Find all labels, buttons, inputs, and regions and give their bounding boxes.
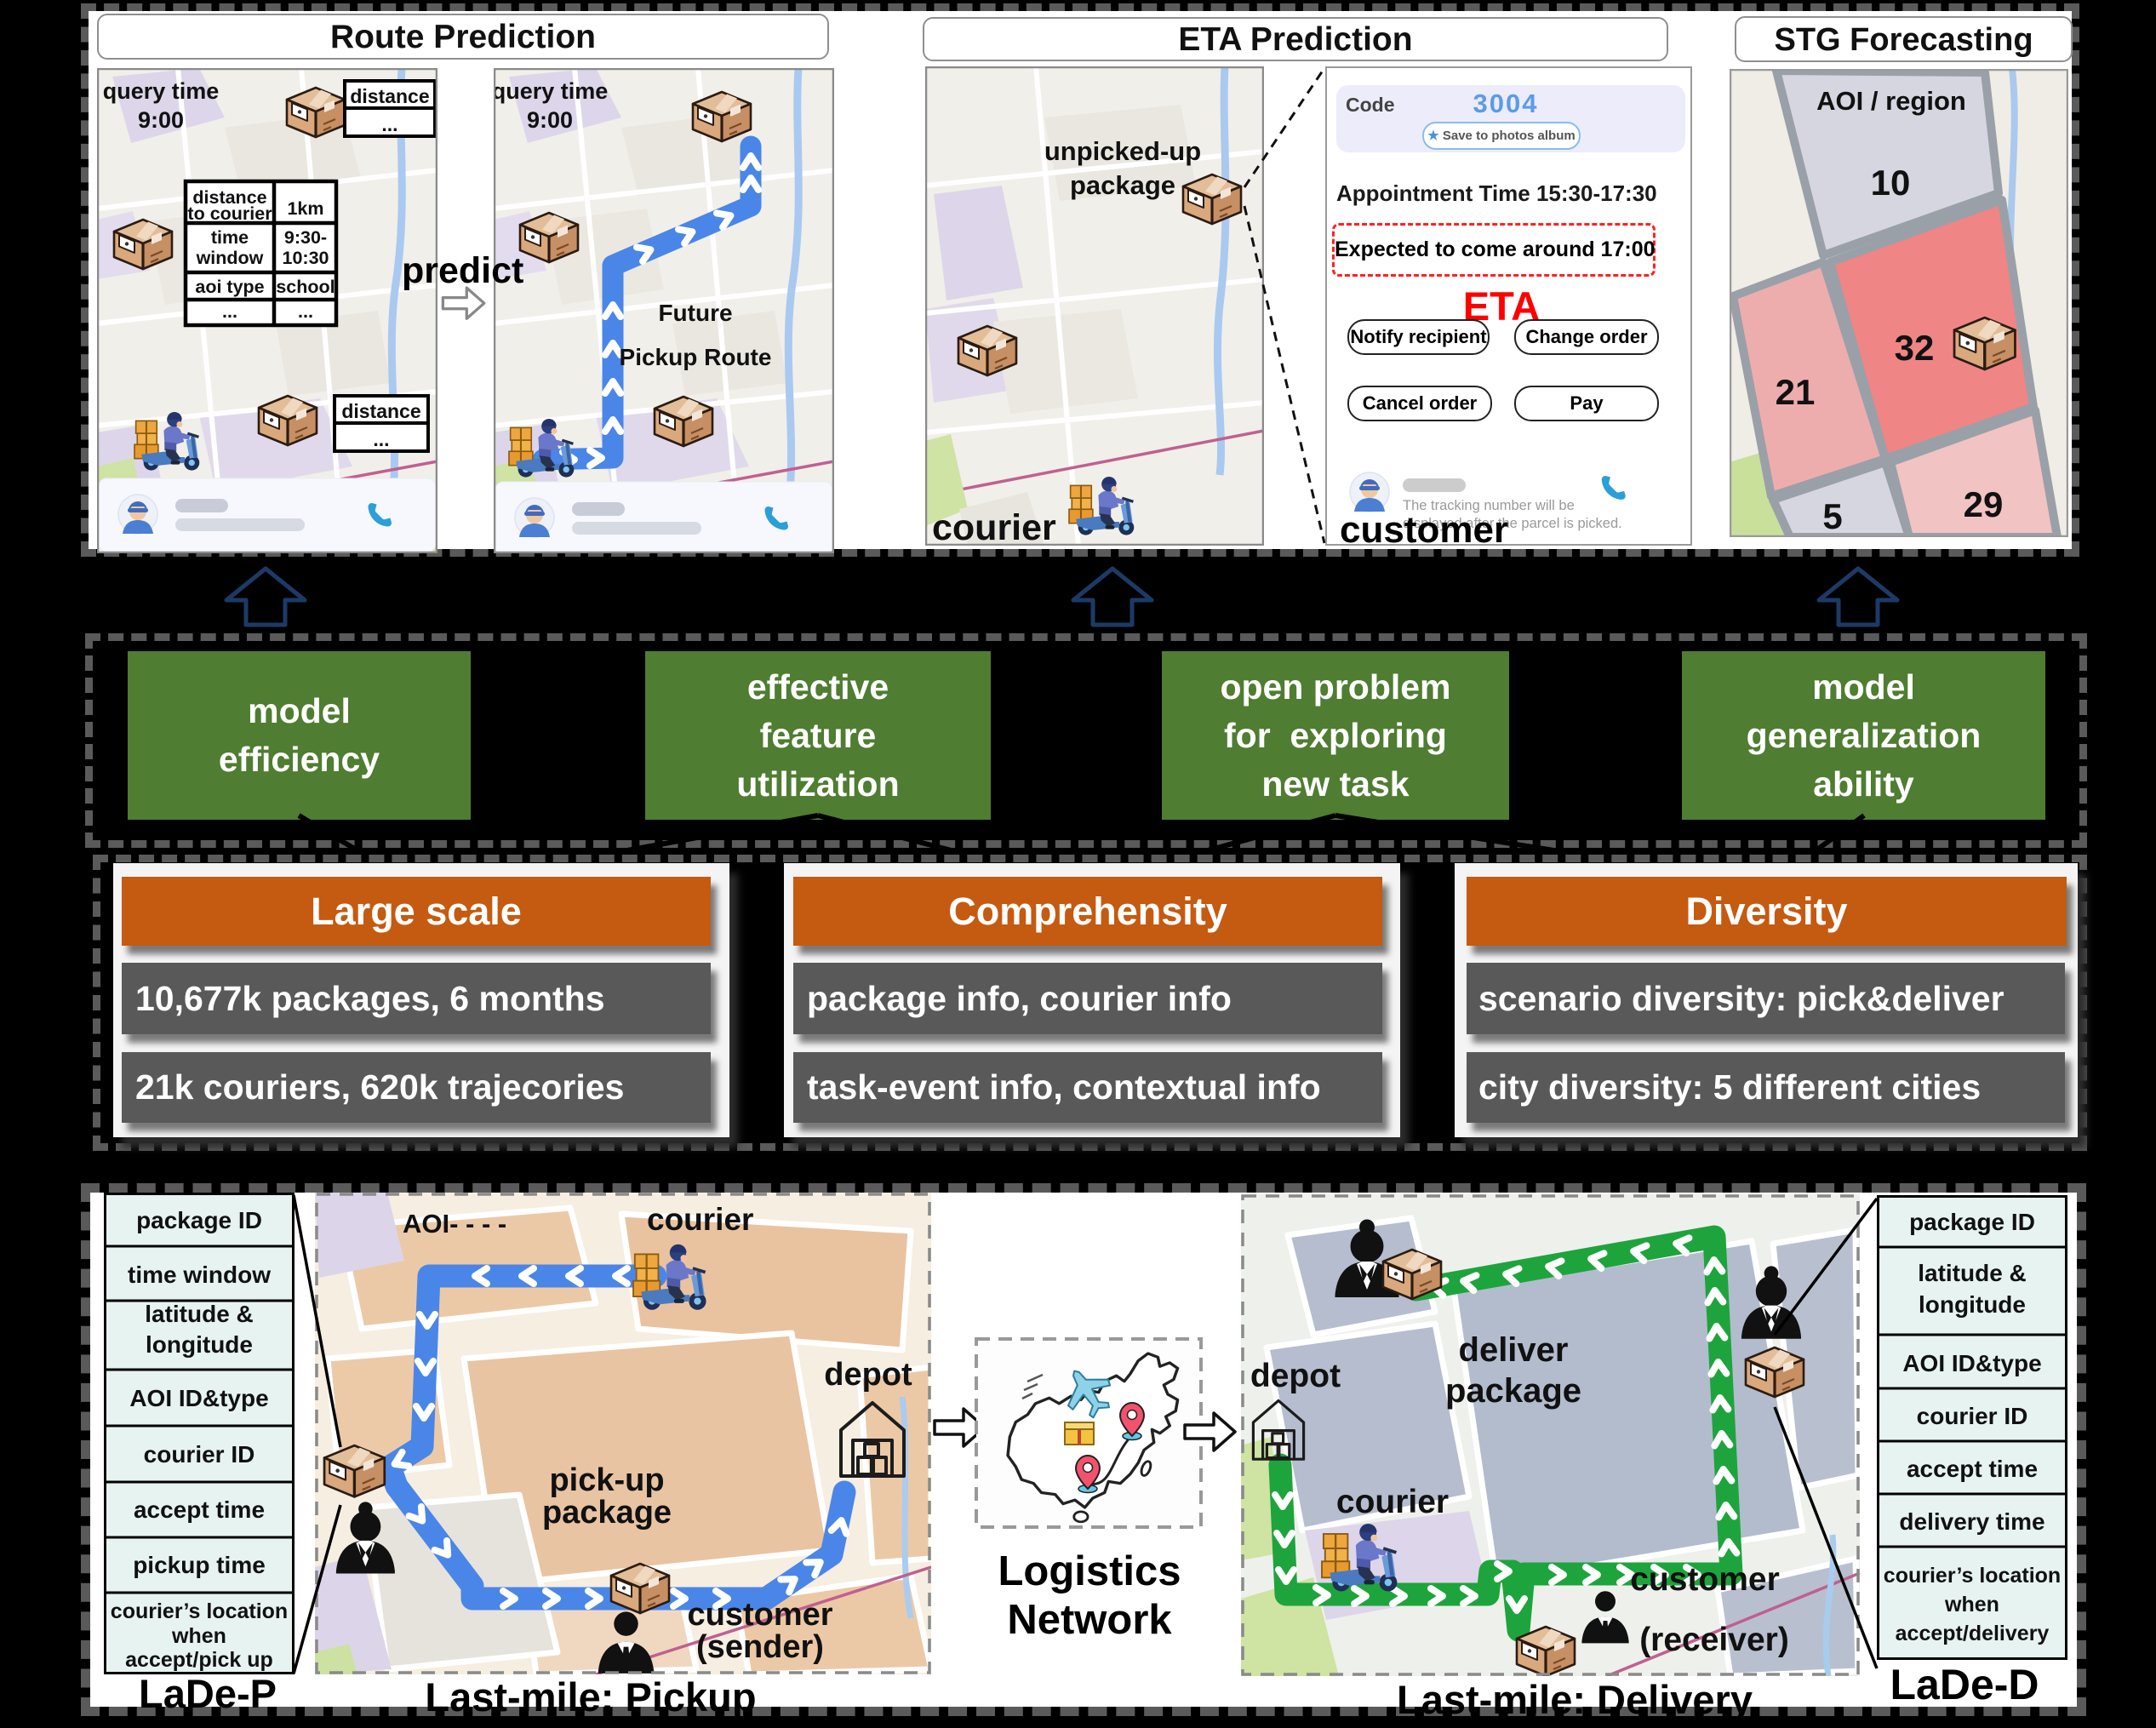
svg-text:pickup time: pickup time (133, 1552, 266, 1578)
svg-text:query time: query time (494, 78, 608, 104)
svg-text:latitude &: latitude & (1918, 1260, 2027, 1286)
svg-text:package ID: package ID (1909, 1209, 2035, 1235)
svg-text:1km: 1km (287, 198, 323, 219)
svg-text:courier: courier (1336, 1484, 1449, 1520)
svg-text:customer: customer (687, 1597, 832, 1633)
svg-text:longitude: longitude (1919, 1291, 2026, 1318)
svg-text:accept time: accept time (134, 1496, 265, 1523)
svg-text:courier: courier (647, 1202, 753, 1237)
svg-text:query time: query time (103, 78, 220, 104)
svg-text:9:00: 9:00 (527, 107, 573, 133)
svg-text:distance: distance (350, 85, 429, 107)
svg-text:deliver: deliver (1459, 1331, 1569, 1369)
svg-text:package: package (1070, 170, 1175, 200)
svg-text:...: ... (373, 428, 389, 450)
svg-text:latitude &: latitude & (145, 1301, 254, 1327)
svg-text:pick-up: pick-up (549, 1462, 664, 1498)
svg-text:delivery time: delivery time (1899, 1508, 2044, 1535)
svg-text:5: 5 (1822, 496, 1842, 536)
svg-text:courier’s location: courier’s location (1884, 1564, 2061, 1588)
svg-text:9:30-: 9:30- (284, 227, 327, 248)
svg-text:courier ID: courier ID (144, 1441, 255, 1468)
svg-text:customer: customer (1630, 1561, 1780, 1598)
svg-text:...: ... (222, 301, 237, 322)
svg-text:10:30: 10:30 (283, 248, 329, 268)
svg-text:Future: Future (658, 300, 732, 326)
svg-text:when: when (171, 1624, 226, 1648)
svg-text:29: 29 (1964, 484, 2004, 524)
svg-text:school: school (276, 277, 335, 297)
svg-text:depot: depot (824, 1357, 912, 1393)
svg-text:...: ... (381, 113, 397, 135)
svg-text:AOI / region: AOI / region (1816, 86, 1966, 116)
svg-text:accept time: accept time (1907, 1456, 2038, 1482)
svg-text:depot: depot (1250, 1358, 1341, 1394)
svg-text:window: window (196, 248, 264, 268)
svg-text:time window: time window (128, 1262, 271, 1288)
svg-text:(sender): (sender) (696, 1629, 824, 1665)
svg-text:AOI ID&type: AOI ID&type (129, 1385, 268, 1411)
svg-text:when: when (1944, 1593, 1999, 1616)
svg-text:32: 32 (1895, 328, 1935, 368)
svg-text:distance: distance (341, 400, 420, 422)
svg-text:to courier: to courier (187, 203, 272, 224)
svg-text:accept/pick up: accept/pick up (125, 1648, 273, 1672)
svg-text:aoi type: aoi type (195, 277, 264, 297)
svg-text:accept/delivery: accept/delivery (1896, 1622, 2050, 1645)
svg-text:package ID: package ID (136, 1207, 262, 1233)
svg-text:courier: courier (932, 507, 1056, 546)
svg-text:...: ... (298, 301, 313, 322)
svg-text:9:00: 9:00 (138, 107, 184, 133)
svg-text:courier’s location: courier’s location (111, 1599, 288, 1623)
svg-text:10: 10 (1871, 163, 1911, 203)
svg-text:courier ID: courier ID (1917, 1403, 2028, 1429)
svg-text:unpicked-up: unpicked-up (1044, 136, 1201, 166)
svg-text:AOI- - - -: AOI- - - - (403, 1209, 506, 1239)
svg-text:AOI ID&type: AOI ID&type (1902, 1350, 2041, 1376)
svg-text:21: 21 (1776, 372, 1816, 412)
svg-text:package: package (542, 1495, 672, 1531)
svg-text:longitude: longitude (146, 1331, 253, 1358)
svg-text:package: package (1445, 1372, 1581, 1410)
svg-text:Pickup Route: Pickup Route (620, 344, 772, 370)
svg-text:time: time (211, 227, 249, 248)
